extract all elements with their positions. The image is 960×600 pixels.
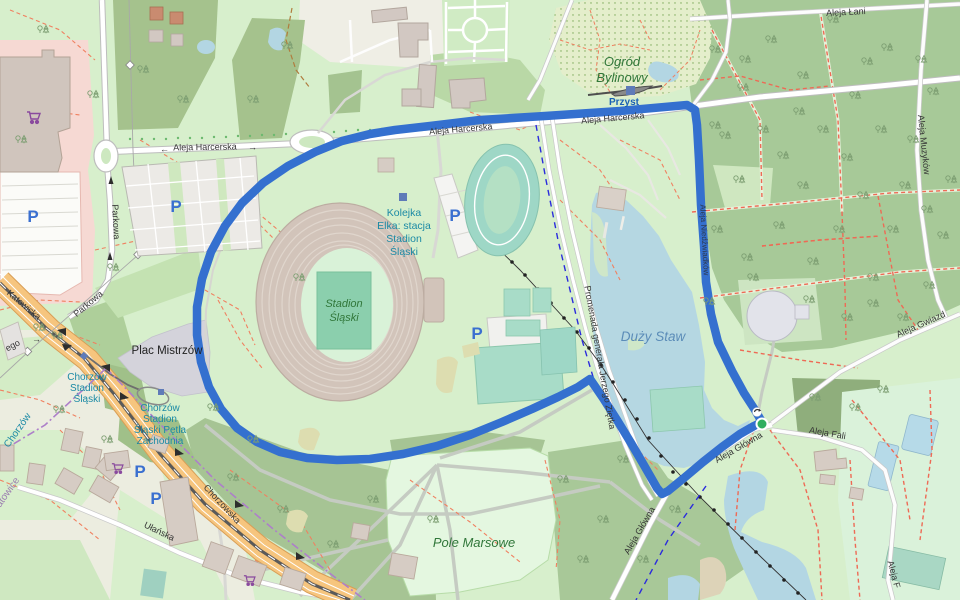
svg-text:Stadion: Stadion <box>143 414 177 425</box>
svg-text:Elka: stacja: Elka: stacja <box>377 220 431 232</box>
svg-text:Stadion: Stadion <box>386 233 422 245</box>
svg-text:Chorzów: Chorzów <box>67 372 107 383</box>
svg-text:P: P <box>471 324 482 343</box>
svg-text:Aleja Łani: Aleja Łani <box>826 6 866 18</box>
svg-text:→: → <box>32 334 41 344</box>
svg-text:Chorzów: Chorzów <box>140 403 180 414</box>
svg-text:Zachodnia: Zachodnia <box>137 436 184 447</box>
svg-text:P: P <box>134 462 145 481</box>
svg-text:←: ← <box>160 144 169 154</box>
svg-text:Stadion: Stadion <box>70 383 104 394</box>
svg-text:Duży Staw: Duży Staw <box>621 329 687 344</box>
svg-text:P: P <box>170 197 181 216</box>
svg-text:P: P <box>27 207 38 226</box>
svg-text:Kolejka: Kolejka <box>387 207 422 219</box>
svg-text:P: P <box>150 489 161 508</box>
svg-text:→: → <box>248 142 257 152</box>
svg-text:Śląski: Śląski <box>74 392 101 405</box>
svg-text:Ogród: Ogród <box>604 54 641 69</box>
svg-text:Parkowa: Parkowa <box>110 204 122 239</box>
svg-text:Przyst: Przyst <box>609 97 640 108</box>
svg-text:Stadion: Stadion <box>325 298 362 310</box>
svg-text:Plac Mistrzów: Plac Mistrzów <box>132 345 204 357</box>
svg-text:P: P <box>449 206 460 225</box>
svg-text:Pole Marsowe: Pole Marsowe <box>433 535 515 550</box>
svg-text:Śląski: Śląski <box>329 311 359 324</box>
svg-text:Bylinowy: Bylinowy <box>596 70 649 85</box>
svg-text:Aleja Harcerska: Aleja Harcerska <box>173 141 237 152</box>
svg-text:Śląski: Śląski <box>390 245 418 258</box>
svg-text:Śląski Pętla: Śląski Pętla <box>134 423 187 436</box>
